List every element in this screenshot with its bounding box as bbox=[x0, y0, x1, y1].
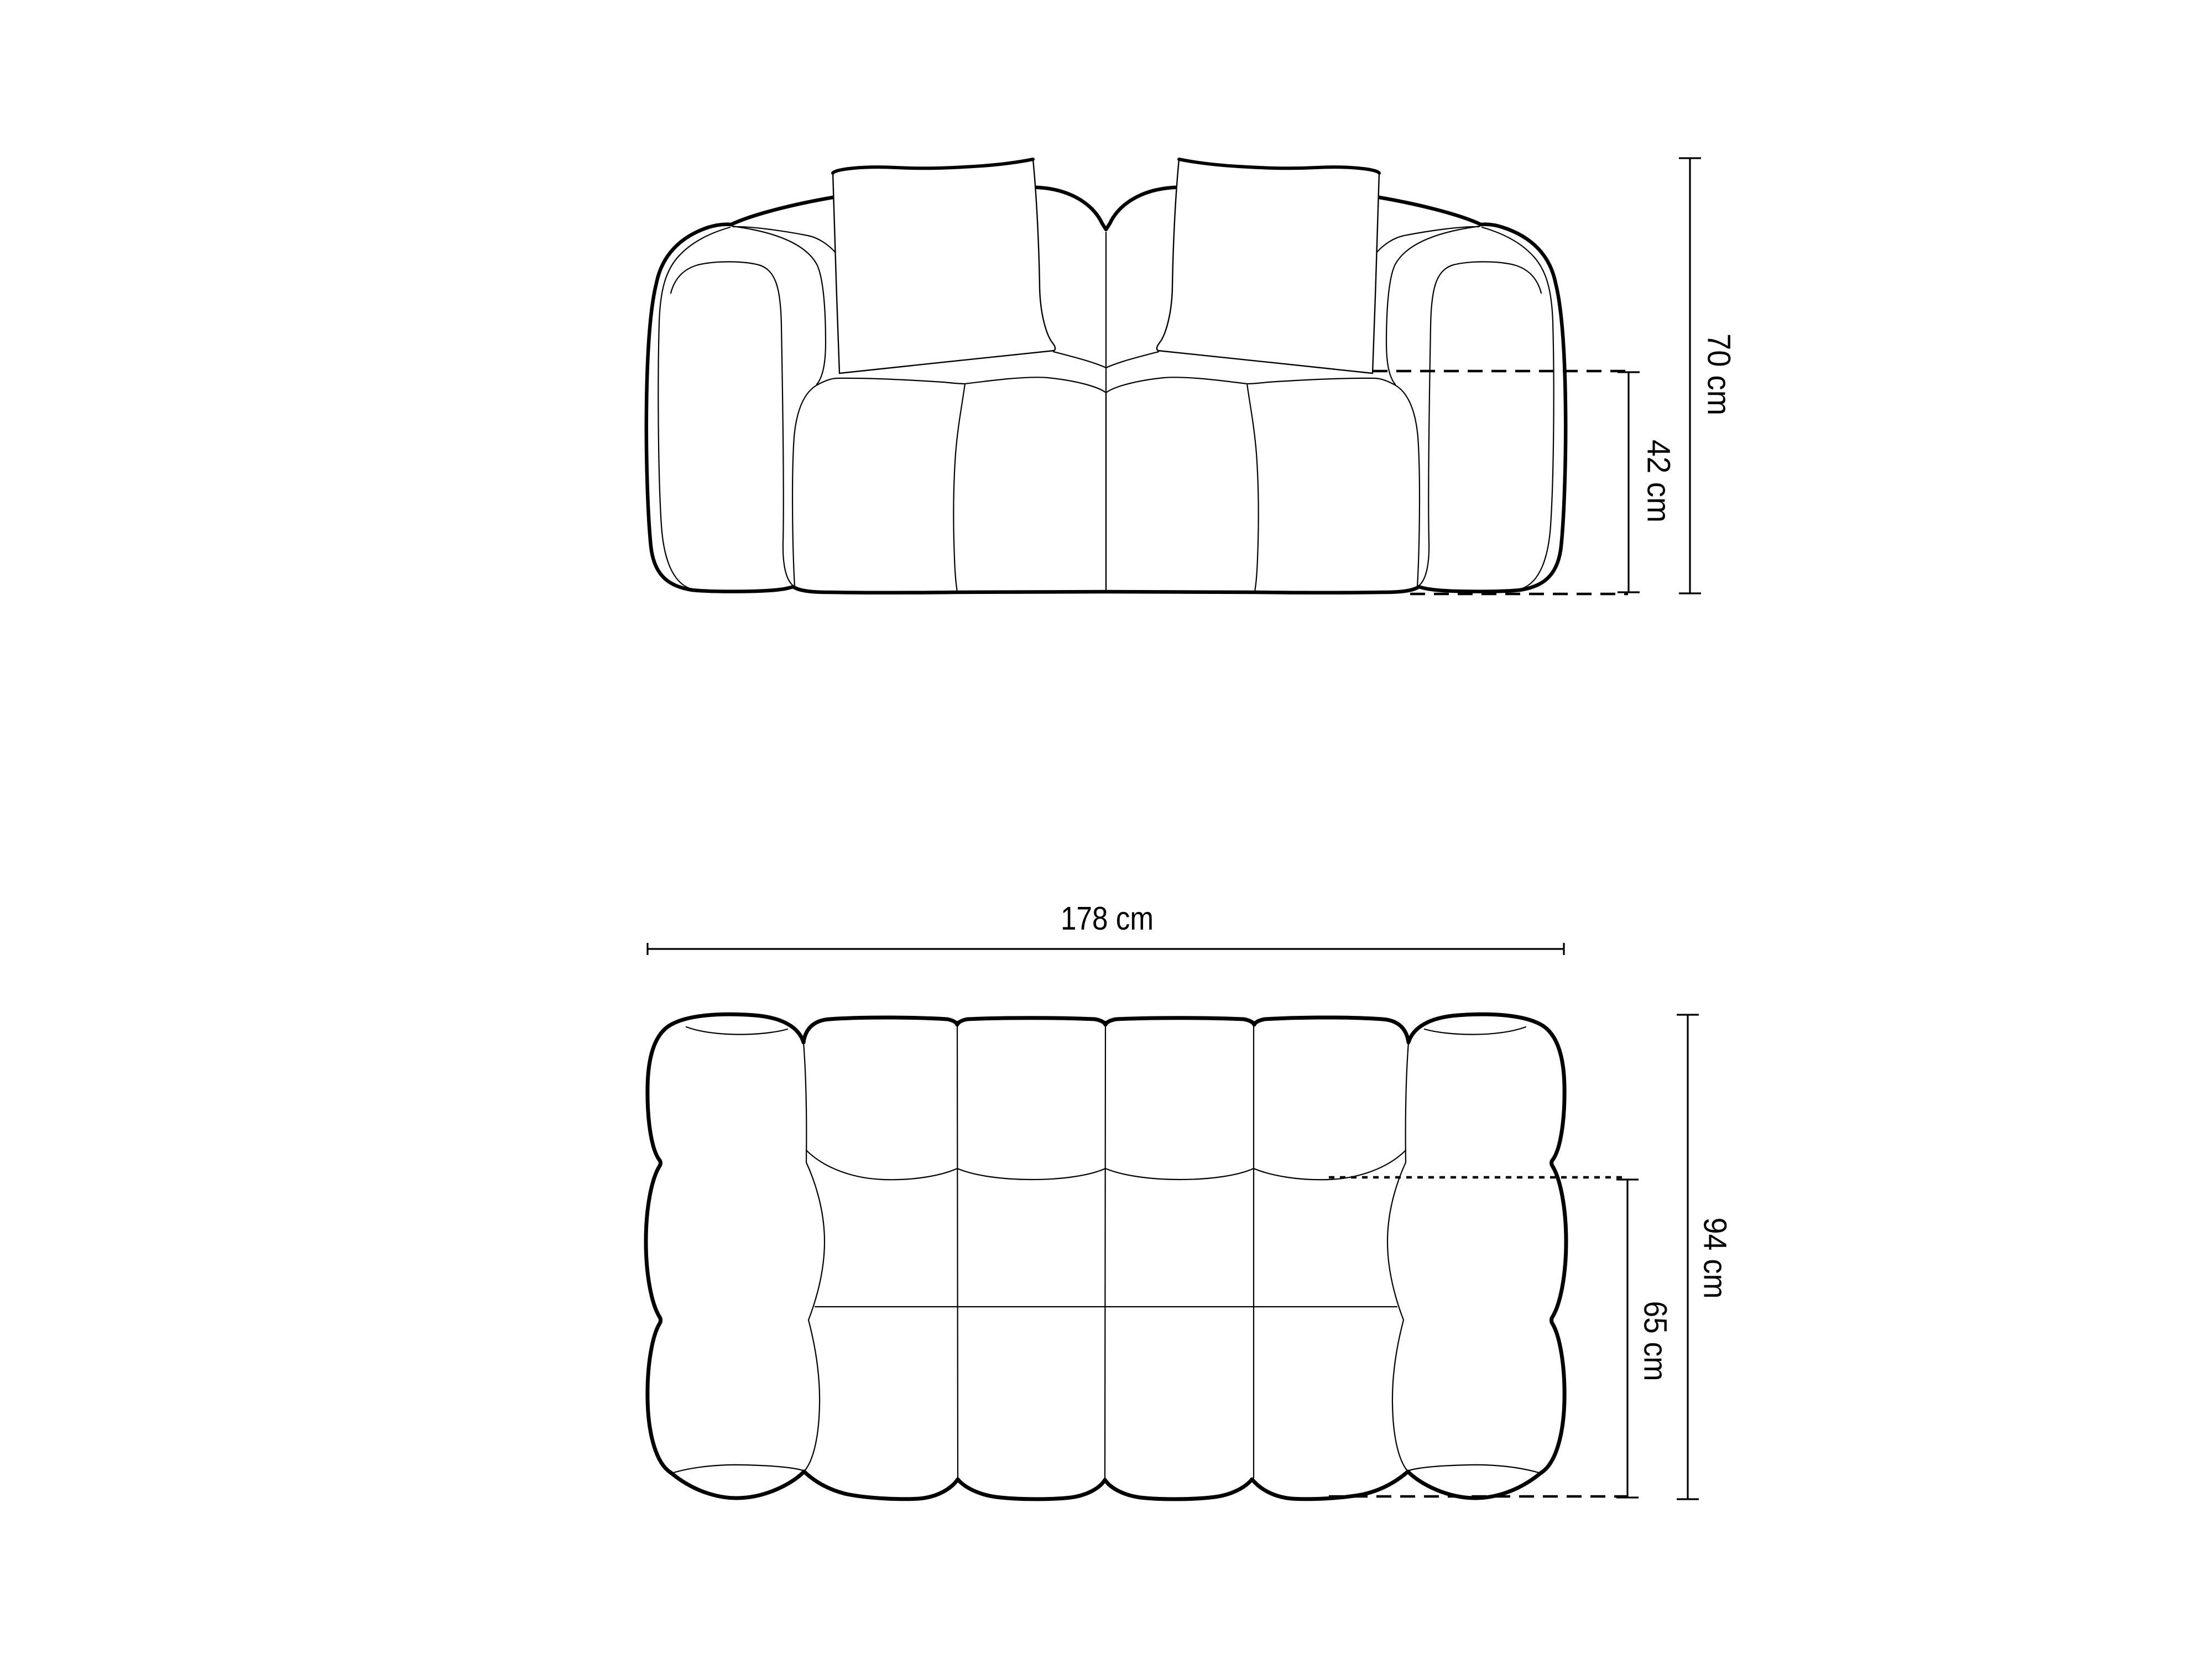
svg-text:42 cm: 42 cm bbox=[1641, 440, 1677, 523]
svg-text:65 cm: 65 cm bbox=[1637, 1301, 1673, 1381]
svg-text:94 cm: 94 cm bbox=[1697, 1218, 1733, 1299]
svg-text:178 cm: 178 cm bbox=[1061, 900, 1154, 937]
svg-text:70 cm: 70 cm bbox=[1701, 333, 1737, 415]
